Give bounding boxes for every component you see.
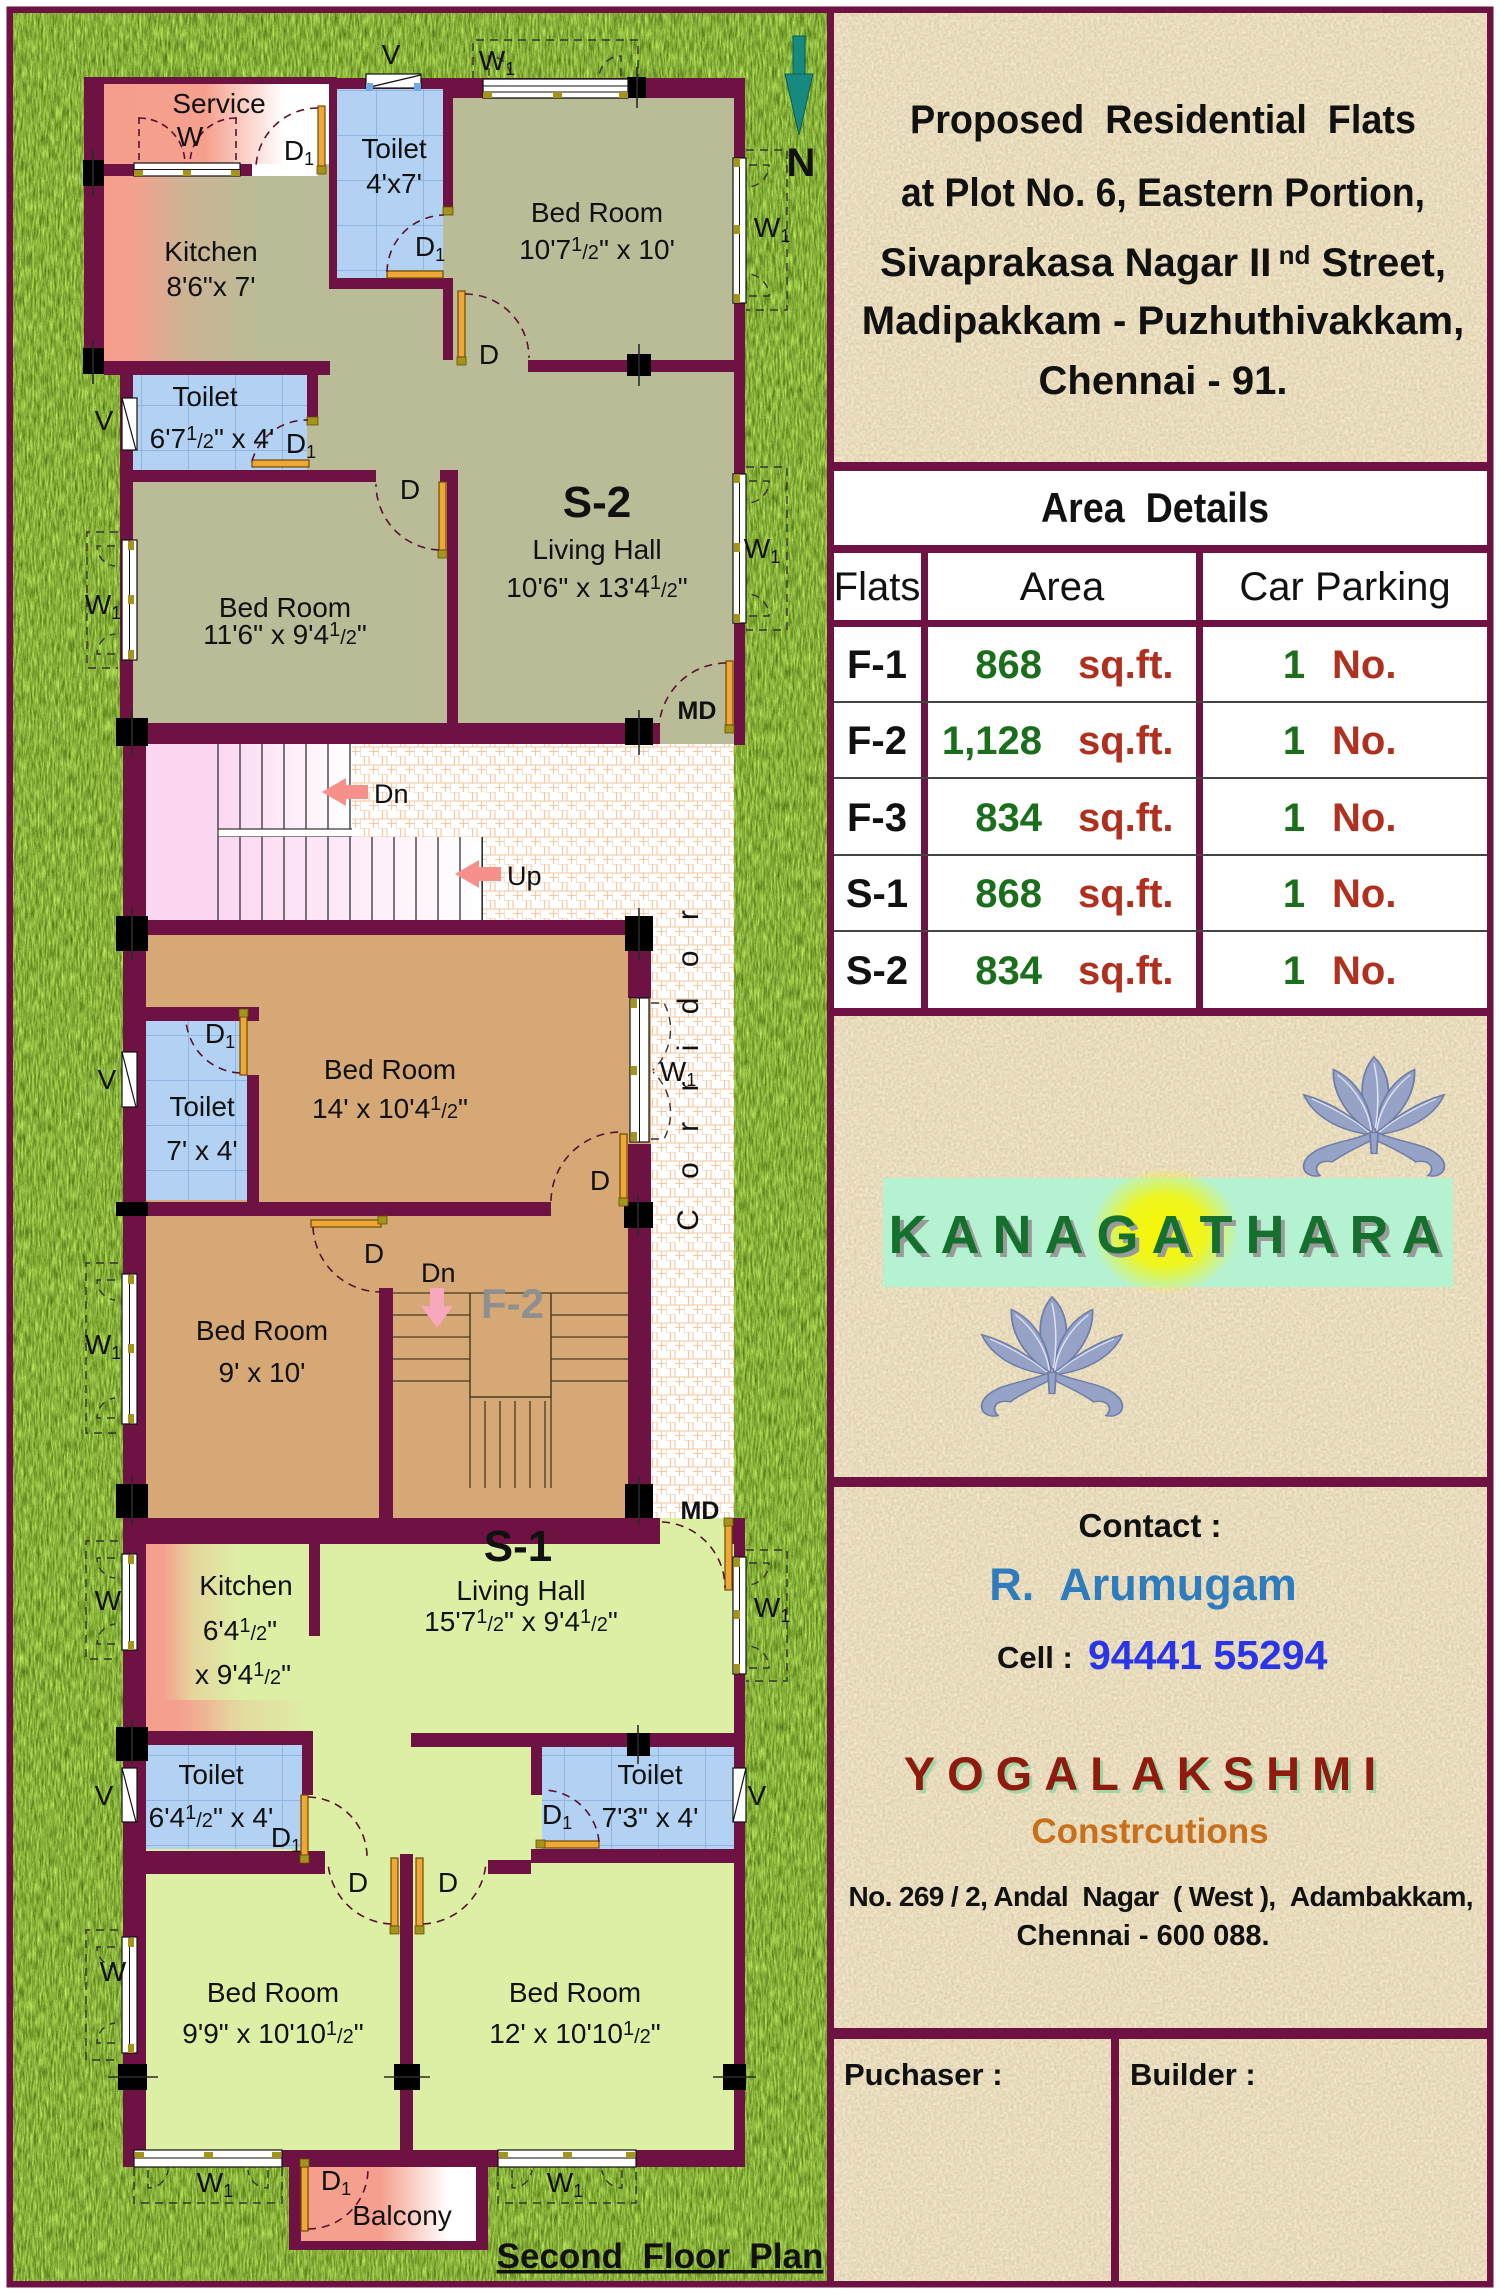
svg-text:sq.ft.: sq.ft.: [1078, 796, 1174, 840]
svg-text:MD: MD: [681, 1497, 720, 1525]
svg-text:V: V: [95, 405, 114, 436]
svg-text:V: V: [98, 1064, 117, 1095]
svg-text:W: W: [177, 121, 204, 152]
svg-text:834: 834: [975, 949, 1042, 993]
svg-text:8'6"x 7': 8'6"x 7': [166, 271, 255, 302]
svg-text:S-2: S-2: [846, 949, 908, 993]
svg-text:Area: Area: [1020, 565, 1105, 609]
svg-text:D: D: [590, 1165, 610, 1196]
svg-text:D: D: [479, 339, 499, 370]
svg-text:Kitchen: Kitchen: [164, 236, 257, 267]
svg-text:No.: No.: [1332, 643, 1396, 687]
svg-text:Car Parking: Car Parking: [1239, 565, 1450, 609]
svg-text:No.: No.: [1332, 796, 1396, 840]
svg-text:Cell :: Cell :: [997, 1640, 1073, 1675]
svg-text:Service: Service: [172, 88, 265, 119]
svg-text:sq.ft.: sq.ft.: [1078, 643, 1174, 687]
svg-text:Area Details: Area Details: [1041, 484, 1269, 531]
svg-text:F-1: F-1: [847, 643, 907, 687]
svg-text:1: 1: [1283, 949, 1305, 993]
svg-text:9' x 10': 9' x 10': [219, 1357, 306, 1388]
svg-text:W: W: [100, 1956, 127, 1987]
svg-text:Toilet: Toilet: [178, 1759, 244, 1790]
svg-text:Puchaser :: Puchaser :: [844, 2057, 1003, 2092]
svg-text:sq.ft.: sq.ft.: [1078, 949, 1174, 993]
svg-text:Constrcutions: Constrcutions: [1031, 1812, 1268, 1851]
svg-text:Chennai - 600 088.: Chennai - 600 088.: [1016, 1920, 1269, 1952]
svg-text:No.: No.: [1332, 872, 1396, 916]
svg-text:N: N: [787, 141, 816, 185]
svg-text:Bed Room: Bed Room: [324, 1054, 456, 1085]
svg-text:F-2: F-2: [847, 719, 907, 763]
svg-text:Flats: Flats: [834, 565, 921, 609]
svg-text:V: V: [95, 1780, 114, 1811]
svg-text:Toilet: Toilet: [361, 133, 427, 164]
svg-text:7' x 4': 7' x 4': [166, 1135, 237, 1166]
svg-text:Living Hall: Living Hall: [532, 534, 661, 565]
svg-text:V: V: [382, 39, 401, 70]
svg-text:S-1: S-1: [846, 872, 908, 916]
svg-text:YOGALAKSHMI: YOGALAKSHMI: [904, 1747, 1389, 1800]
svg-text:sq.ft.: sq.ft.: [1078, 872, 1174, 916]
svg-text:Contact :: Contact :: [1079, 1507, 1222, 1544]
svg-text:Madipakkam - Puzhuthivakkam,: Madipakkam - Puzhuthivakkam,: [862, 299, 1464, 343]
svg-text:No.: No.: [1332, 719, 1396, 763]
svg-text:S-2: S-2: [563, 478, 631, 527]
svg-text:1: 1: [1283, 796, 1305, 840]
svg-text:at Plot No. 6, Eastern Portion: at Plot No. 6, Eastern Portion,: [901, 171, 1425, 215]
svg-text:94441 55294: 94441 55294: [1088, 1632, 1328, 1678]
svg-text:Dn: Dn: [374, 779, 409, 809]
svg-text:868: 868: [975, 643, 1042, 687]
svg-text:W: W: [95, 1585, 122, 1616]
svg-text:Toilet: Toilet: [617, 1759, 683, 1790]
svg-text:Bed Room: Bed Room: [207, 1977, 339, 2008]
svg-text:Balcony: Balcony: [352, 2200, 452, 2231]
svg-text:sq.ft.: sq.ft.: [1078, 719, 1174, 763]
svg-text:Second Floor Plan: Second Floor Plan: [497, 2237, 824, 2276]
svg-text:1,128: 1,128: [942, 719, 1042, 763]
svg-text:D: D: [348, 1867, 368, 1898]
svg-text:Bed Room: Bed Room: [509, 1977, 641, 2008]
svg-text:No. 269 / 2, Andal Nagar ( W: No. 269 / 2, Andal Nagar ( West ), Adamb…: [849, 1881, 1474, 1912]
svg-text:S-1: S-1: [484, 1522, 552, 1571]
svg-text:10'6" x 13'41/2": 10'6" x 13'41/2": [506, 572, 687, 603]
svg-text:Up: Up: [507, 861, 542, 891]
svg-text:868: 868: [975, 872, 1042, 916]
svg-text:F-3: F-3: [847, 796, 907, 840]
svg-text:Kitchen: Kitchen: [199, 1570, 292, 1601]
svg-text:Toilet: Toilet: [172, 381, 238, 412]
svg-text:F-2: F-2: [481, 1280, 544, 1327]
svg-text:Bed Room: Bed Room: [531, 197, 663, 228]
svg-text:9'9" x 10'101/2": 9'9" x 10'101/2": [182, 2018, 363, 2049]
svg-text:Sivaprakasa Nagar II nd Street: Sivaprakasa Nagar II nd Street,: [880, 240, 1446, 285]
svg-text:1: 1: [1283, 872, 1305, 916]
svg-text:V: V: [748, 1780, 767, 1811]
svg-text:7'3" x 4': 7'3" x 4': [602, 1802, 699, 1833]
svg-text:1: 1: [1283, 719, 1305, 763]
svg-text:No.: No.: [1332, 949, 1396, 993]
svg-text:1: 1: [1283, 643, 1305, 687]
svg-text:MD: MD: [678, 697, 717, 725]
svg-text:Chennai - 91.: Chennai - 91.: [1039, 359, 1288, 403]
svg-text:R. Arumugam: R. Arumugam: [989, 1559, 1297, 1610]
svg-text:D: D: [364, 1238, 384, 1269]
svg-text:D: D: [400, 474, 420, 505]
svg-text:4'x7': 4'x7': [366, 168, 422, 199]
svg-text:Living Hall: Living Hall: [456, 1575, 585, 1606]
svg-text:Dn: Dn: [421, 1258, 456, 1288]
svg-text:Builder :: Builder :: [1130, 2057, 1256, 2092]
svg-text:Proposed Residential Flats: Proposed Residential Flats: [910, 98, 1416, 142]
svg-text:Toilet: Toilet: [169, 1091, 235, 1122]
svg-text:834: 834: [975, 796, 1042, 840]
svg-text:KANAGATHARA: KANAGATHARA: [889, 1205, 1454, 1265]
svg-text:D: D: [438, 1867, 458, 1898]
svg-text:Bed Room: Bed Room: [196, 1315, 328, 1346]
